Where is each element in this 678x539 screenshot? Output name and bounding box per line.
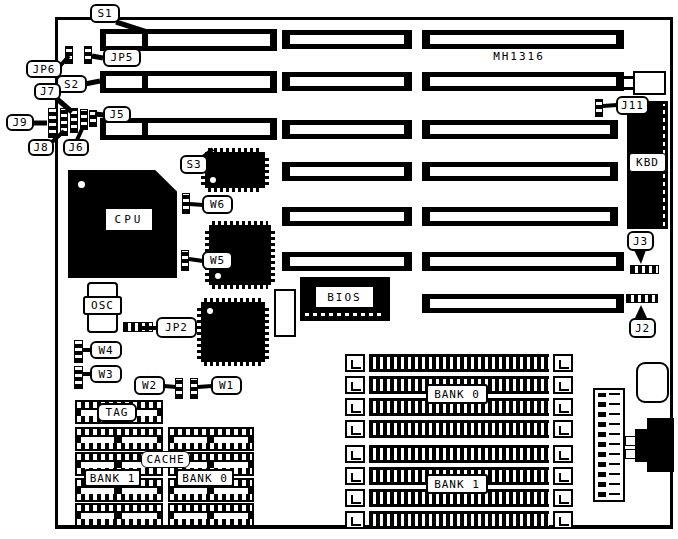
tag-label: TAG [97, 403, 137, 422]
simm-bank1-label: BANK 1 [426, 474, 488, 494]
callout-jp6: JP6 [26, 60, 62, 78]
cache-label: CACHE [141, 451, 190, 468]
callout-w2: W2 [134, 376, 165, 395]
callout-w5: W5 [202, 251, 233, 270]
callout-j11: J11 [616, 96, 649, 115]
simm-bank0-label: BANK 0 [426, 384, 488, 404]
callout-jp5: JP5 [103, 48, 141, 67]
dip-bank0-label: BANK 0 [176, 469, 234, 487]
dip-bank1-label: BANK 1 [84, 469, 141, 487]
callout-tails [0, 0, 678, 539]
bios-label: BIOS [316, 287, 373, 307]
callout-w3: W3 [90, 365, 122, 383]
kbd-label: KBD [629, 153, 666, 172]
cpu-label: CPU [106, 209, 152, 230]
callout-s3: S3 [180, 155, 208, 174]
callout-j3: J3 [627, 231, 654, 251]
osc-label: OSC [83, 296, 122, 315]
callout-s1: S1 [90, 4, 120, 23]
callout-j6: J6 [63, 139, 89, 156]
callout-j9: J9 [6, 114, 34, 131]
callout-j8: J8 [28, 139, 54, 156]
callout-jp2: JP2 [156, 317, 197, 338]
callout-w4: W4 [90, 341, 122, 359]
motherboard-diagram: MH1316 CPU BIOS OSC KBD [0, 0, 678, 539]
callout-j2: J2 [629, 318, 656, 338]
callout-j5: J5 [103, 106, 131, 123]
callout-w6: W6 [202, 195, 233, 214]
callout-w1: W1 [211, 376, 242, 395]
callout-j7: J7 [34, 83, 61, 100]
board-model: MH1316 [488, 49, 550, 64]
